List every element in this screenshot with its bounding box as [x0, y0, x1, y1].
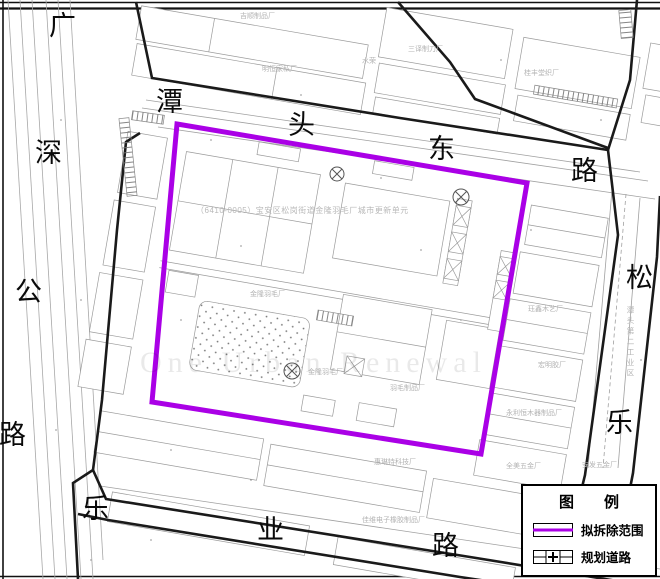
legend-item-planned-road: 规划道路: [533, 547, 655, 566]
road-label-tantou-2: 头: [288, 112, 315, 139]
industrial-zone-label: 潭头第二工业区: [625, 306, 636, 416]
road-label-songle-1: 松: [626, 265, 653, 292]
road-label-guangshen-4: 路: [0, 422, 26, 449]
legend-item-demolition: 拟拆除范围: [533, 520, 655, 539]
demolition-boundary-swatch: [533, 523, 573, 537]
factory-label-hongming: 宏明胶厂: [538, 362, 566, 370]
factory-label-anfa: 安发五金厂: [582, 462, 617, 470]
planning-unit-label: （6410-0005）宝安区松岗街道金隆羽毛厂城市更新单元: [196, 205, 409, 216]
legend-title-right: 例: [604, 491, 619, 512]
factory-label-jishun: 吉顺制品厂: [240, 13, 275, 21]
factory-label-sanyi: 三译制刀厂: [408, 46, 443, 54]
factory-label-jiawei: 佳维电子橡胶制品厂: [362, 517, 425, 525]
factory-label-huilin: 惠琳特科技厂: [374, 459, 416, 467]
factory-label-shuirong: 水荣: [362, 58, 376, 66]
road-label-tantou-4: 路: [571, 158, 598, 185]
factory-label-jinlong-1: 金隆羽毛厂: [250, 291, 285, 299]
factory-label-yumao: 羽毛制品厂: [390, 385, 425, 393]
road-label-leye-3: 路: [432, 533, 459, 560]
road-label-leye-2: 业: [257, 517, 284, 544]
factory-label-juexin: 珏鑫木艺厂: [528, 306, 563, 314]
road-label-guangshen-2: 深: [35, 140, 62, 167]
road-label-guangshen-3: 公: [15, 279, 42, 306]
road-label-tantou-3: 东: [428, 136, 455, 163]
planned-road-swatch: [533, 550, 573, 564]
road-label-guangshen-1: 广: [49, 13, 76, 40]
road-label-tantou-1: 潭: [156, 89, 183, 116]
planning-map: One Urban Renewal 广 深 公 路 潭 头 东 路 松 乐 乐 …: [0, 0, 660, 579]
legend-item-demolition-label: 拟拆除范围: [581, 520, 644, 539]
factory-label-quanmei: 全美五金厂: [506, 463, 541, 471]
legend-item-planned-road-label: 规划道路: [581, 547, 631, 566]
factory-label-jinlong-2: 金隆羽毛厂: [308, 369, 343, 377]
factory-label-mingheng: 明恒家私厂: [262, 66, 297, 74]
legend-title-left: 图: [559, 491, 574, 512]
road-label-leye-1: 乐: [82, 496, 109, 523]
factory-label-yongliheng: 永利恒木器制品厂: [506, 410, 562, 418]
legend-title: 图 例: [523, 491, 655, 512]
factory-label-guifeng: 桂丰堂织厂: [524, 70, 559, 78]
legend-box: 图 例 拟拆除范围 规划道路: [521, 484, 657, 577]
